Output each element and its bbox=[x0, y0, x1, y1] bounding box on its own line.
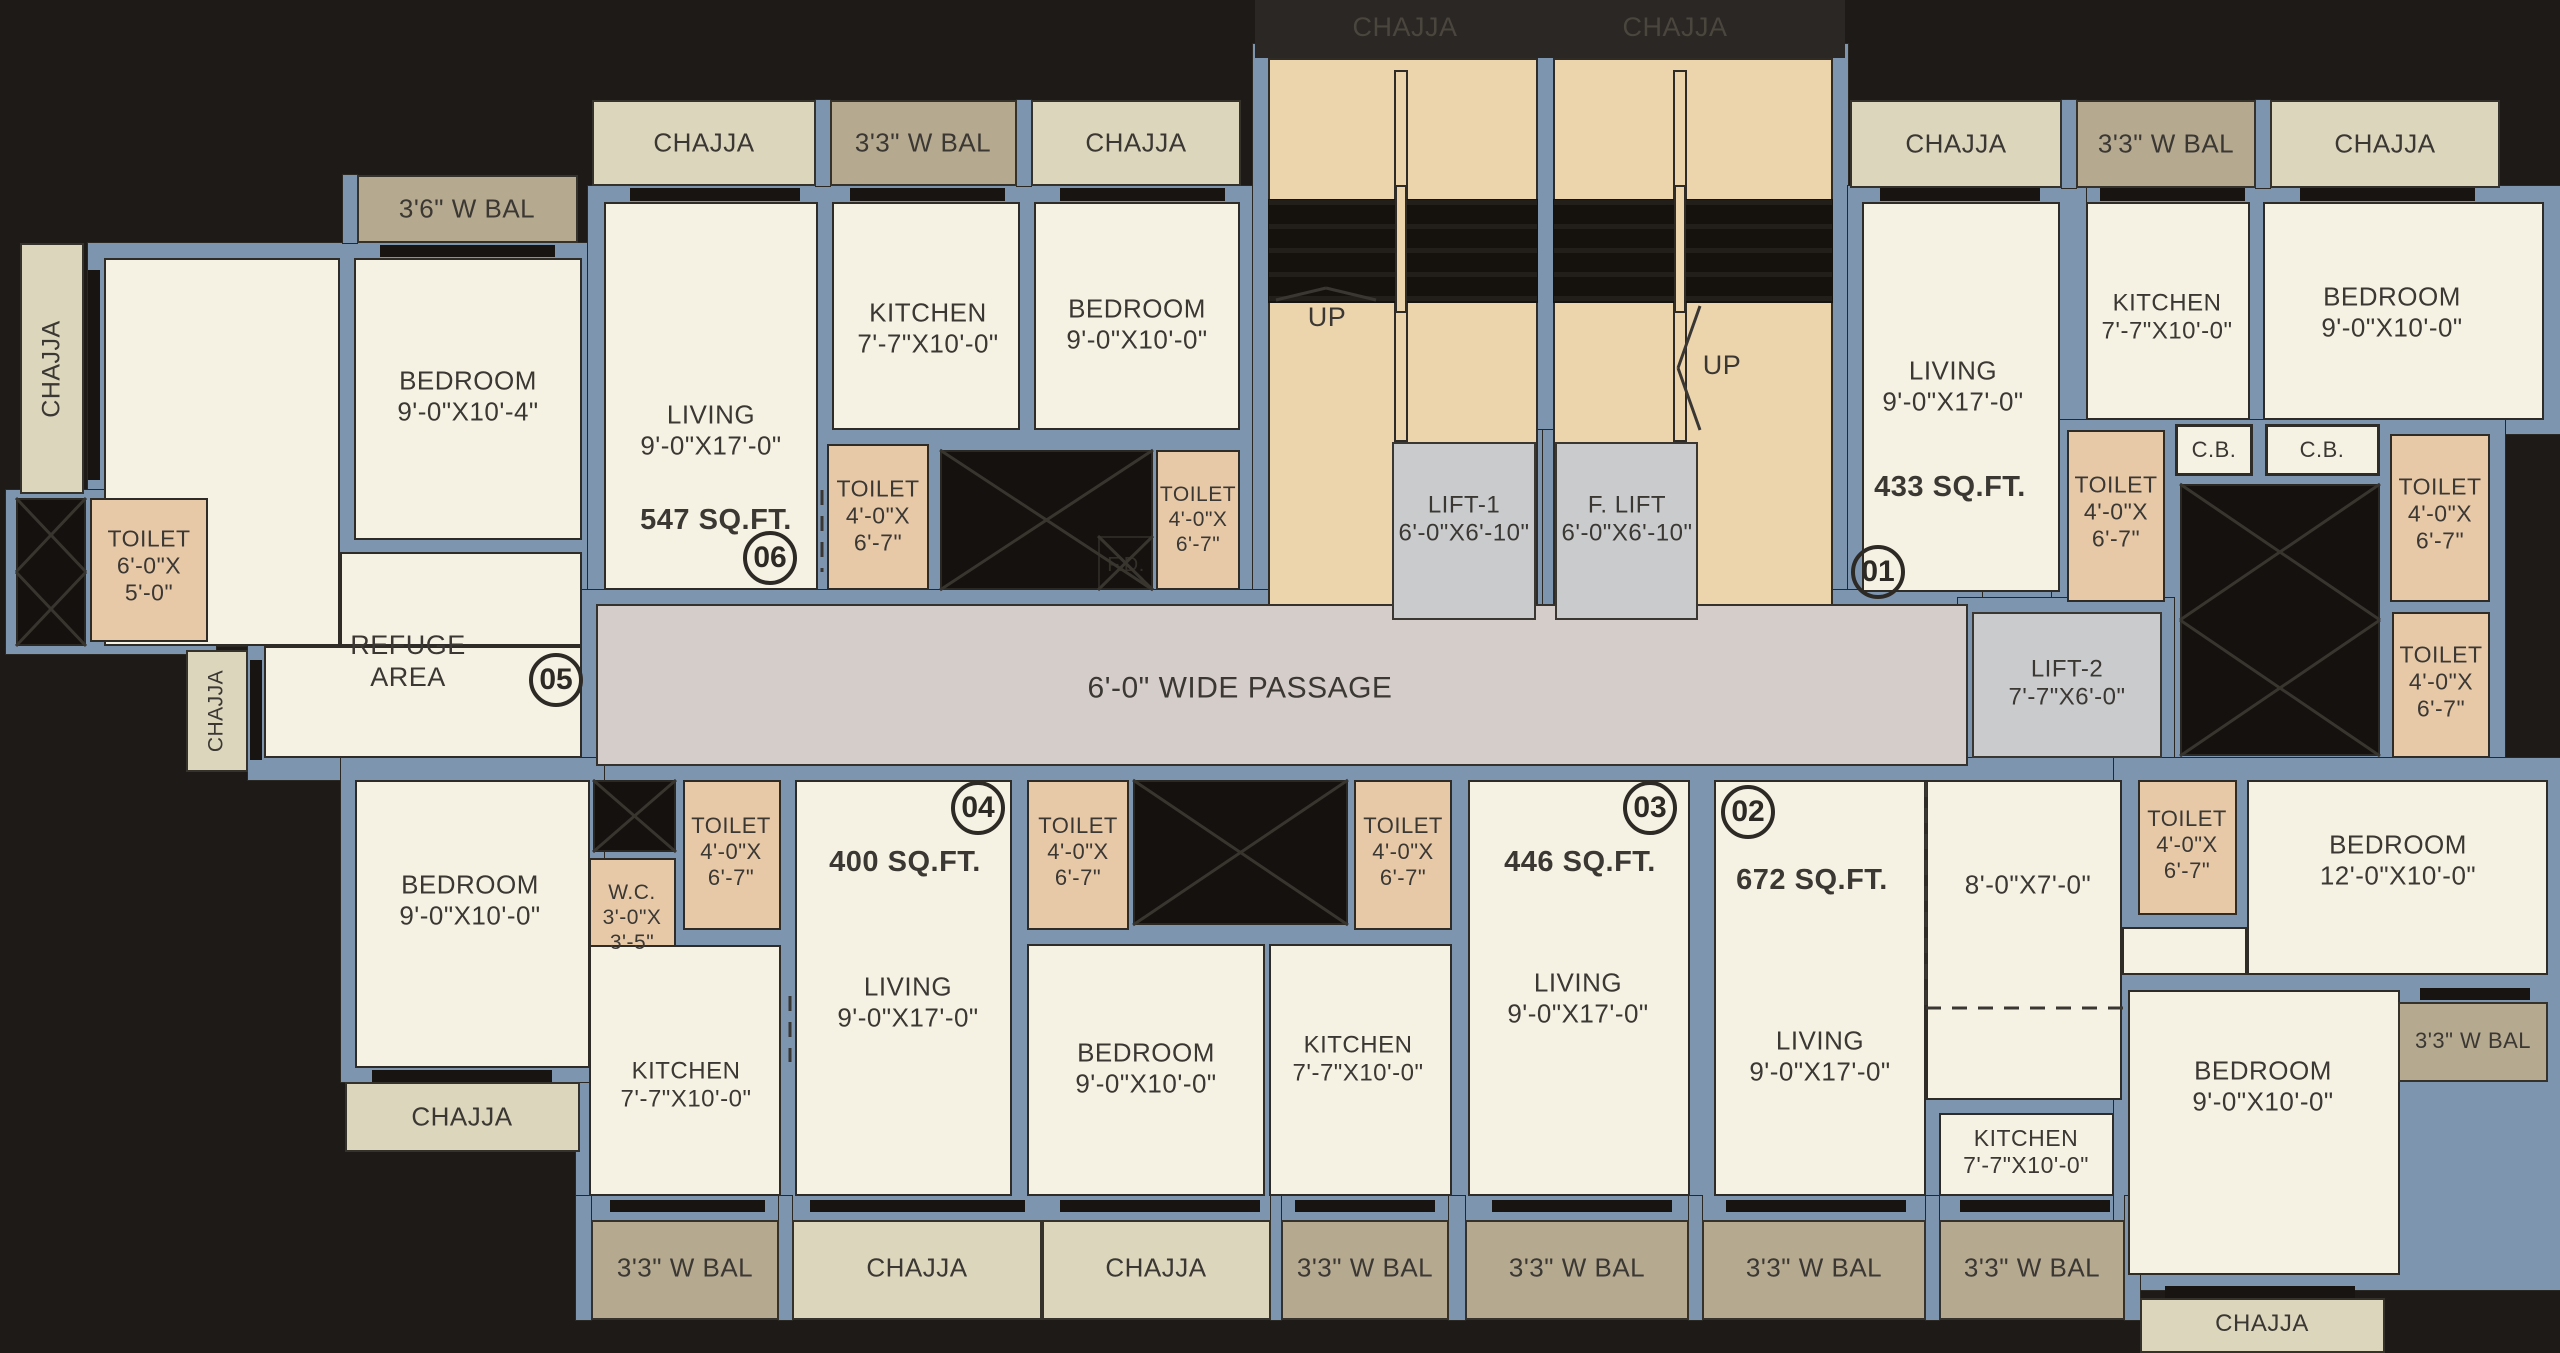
text-label: 433 SQ.FT. bbox=[1874, 470, 2026, 504]
room-label-toilet-01-right-upper: TOILET4'-0"X6'-7" bbox=[2398, 473, 2481, 554]
unit-circle-03: 03 bbox=[1623, 781, 1677, 835]
room-label-living-01: LIVING9'-0"X17'-0" bbox=[1882, 355, 2023, 416]
room-label-bedroom-02-large: BEDROOM12'-0"X10'-0" bbox=[2320, 829, 2476, 890]
room-label-toilet-05: TOILET6'-0"X5'-0" bbox=[107, 525, 190, 606]
duct-shaft bbox=[1133, 780, 1348, 925]
room-label-living-04: LIVING9'-0"X17'-0" bbox=[837, 971, 978, 1032]
room-label-kitchen-01: KITCHEN7'-7"X10'-0" bbox=[2102, 290, 2233, 347]
window-strip bbox=[1880, 188, 2040, 201]
unit-circle-02: 02 bbox=[1721, 785, 1775, 839]
room-label-bedroom-02-small: BEDROOM9'-0"X10'-0" bbox=[2192, 1055, 2333, 1116]
duct-shaft bbox=[16, 498, 86, 646]
text-label: 446 SQ.FT. bbox=[1504, 845, 1656, 879]
window-strip bbox=[1295, 1200, 1435, 1212]
room-label-bedroom-01: BEDROOM9'-0"X10'-0" bbox=[2321, 281, 2462, 342]
room-stair-rail-1 bbox=[1395, 185, 1407, 313]
room-label-chajja-top-4: CHAJJA bbox=[2334, 129, 2435, 160]
wall bbox=[1926, 1196, 1939, 1320]
window-strip bbox=[1060, 188, 1225, 201]
duct-shaft bbox=[2180, 484, 2380, 756]
room-label-living-03: LIVING9'-0"X17'-0" bbox=[1507, 967, 1648, 1028]
window-strip bbox=[2420, 988, 2530, 1000]
unit-circle-06: 06 bbox=[743, 531, 797, 585]
room-label-lift-1: LIFT-16'-0"X6'-10" bbox=[1399, 492, 1530, 549]
room-label-wbal-bottom-2: 3'3" W BAL bbox=[1297, 1253, 1433, 1284]
text-label: UP bbox=[1308, 302, 1347, 334]
room-label-bedroom-03: BEDROOM9'-0"X10'-0" bbox=[1075, 1037, 1216, 1098]
room-label-chajja-bottom-right: CHAJJA bbox=[2215, 1310, 2309, 1338]
window-strip bbox=[850, 188, 1005, 201]
window-strip bbox=[2165, 1286, 2355, 1298]
duct-shaft bbox=[593, 780, 676, 852]
window-strip bbox=[2300, 188, 2475, 201]
room-label-bedroom-06: BEDROOM9'-0"X10'-0" bbox=[1066, 293, 1207, 354]
room-lobby-02 bbox=[2122, 927, 2247, 975]
unit-circle-05: 05 bbox=[529, 653, 583, 707]
wall bbox=[343, 175, 357, 243]
text-label: F.D. bbox=[1107, 554, 1145, 578]
room-label-cupboard-2: C.B. bbox=[2300, 437, 2345, 463]
room-label-toilet-02: TOILET4'-0"X6'-7" bbox=[2147, 806, 2227, 884]
room-label-lift-2: LIFT-27'-7"X6'-0" bbox=[2008, 656, 2125, 713]
room-label-toilet-06-a: TOILET4'-0"X6'-7" bbox=[836, 475, 919, 556]
window-strip bbox=[380, 245, 555, 257]
wall bbox=[1449, 1196, 1465, 1320]
room-label-kitchen-02: KITCHEN7'-7"X10'-0" bbox=[1963, 1125, 2089, 1179]
wall bbox=[1271, 1196, 1281, 1320]
wall bbox=[2256, 100, 2270, 188]
window-strip bbox=[810, 1200, 1025, 1212]
window-strip bbox=[250, 660, 262, 760]
text-label: REFUGEAREA bbox=[350, 630, 466, 694]
room-label-chajja-04: CHAJJA bbox=[411, 1102, 512, 1133]
window-strip bbox=[1060, 1200, 1260, 1212]
room-label-kitchen-06: KITCHEN7'-7"X10'-0" bbox=[857, 297, 998, 358]
room-label-living-02: LIVING9'-0"X17'-0" bbox=[1749, 1025, 1890, 1086]
room-label-chajja-top-3: CHAJJA bbox=[1905, 129, 2006, 160]
room-label-toilet-01-right-lower: TOILET4'-0"X6'-7" bbox=[2399, 641, 2482, 722]
room-label-kitchen-04: KITCHEN7'-7"X10'-0" bbox=[621, 1058, 752, 1115]
text-label: CHAJJA bbox=[1622, 12, 1727, 44]
room-label-wc-04: W.C.3'-0"X3'-5" bbox=[603, 881, 662, 955]
floor-plan: BEDROOM9'-0"X10'-4"TOILET6'-0"X5'-0"LIVI… bbox=[0, 0, 2560, 1353]
window-strip bbox=[1960, 1200, 2110, 1212]
room-label-chajja-bottom-1: CHAJJA bbox=[866, 1253, 967, 1284]
room-label-toilet-04: TOILET4'-0"X6'-7" bbox=[691, 813, 771, 891]
wall bbox=[816, 100, 830, 186]
room-stair-rail-2 bbox=[1674, 185, 1686, 313]
text-label: 400 SQ.FT. bbox=[829, 845, 981, 879]
room-label-wbal-right: 3'3" W BAL bbox=[2415, 1028, 2531, 1054]
room-bedroom-02-small bbox=[2128, 990, 2400, 1275]
text-label: 6'-0" WIDE PASSAGE bbox=[1088, 670, 1393, 705]
room-label-wbal-bottom-4: 3'3" W BAL bbox=[1746, 1253, 1882, 1284]
room-living-02 bbox=[1714, 780, 1926, 1196]
room-label-bedroom-04: BEDROOM9'-0"X10'-0" bbox=[399, 869, 540, 930]
room-label-fire-lift: F. LIFT6'-0"X6'-10" bbox=[1562, 492, 1693, 549]
text-label: 672 SQ.FT. bbox=[1736, 863, 1888, 897]
room-label-wbal-bottom-5: 3'3" W BAL bbox=[1964, 1253, 2100, 1284]
window-strip bbox=[1726, 1200, 1906, 1212]
window-strip bbox=[1492, 1200, 1672, 1212]
room-label-toilet-06-b: TOILET4'-0"X6'-7" bbox=[1160, 483, 1236, 557]
wall bbox=[576, 1196, 591, 1320]
room-flexi-room-02 bbox=[1926, 780, 2122, 1100]
room-label-wbal-bottom-3: 3'3" W BAL bbox=[1509, 1253, 1645, 1284]
unit-circle-01: 01 bbox=[1851, 545, 1905, 599]
room-label-cupboard-1: C.B. bbox=[2192, 437, 2237, 463]
room-label-chajja-top-1: CHAJJA bbox=[653, 128, 754, 159]
wall bbox=[2062, 100, 2076, 188]
text-label: 8'-0"X7'-0" bbox=[1965, 870, 2091, 901]
room-label-kitchen-03: KITCHEN7'-7"X10'-0" bbox=[1293, 1032, 1424, 1089]
room-label-living-06: LIVING9'-0"X17'-0" bbox=[640, 399, 781, 460]
room-label-toilet-03-a: TOILET4'-0"X6'-7" bbox=[1038, 813, 1118, 891]
room-label-chajja-left-vertical-2: CHAJJA bbox=[205, 670, 230, 752]
room-stair-landing-2 bbox=[1553, 199, 1833, 303]
room-label-wbal-36: 3'6" W BAL bbox=[399, 194, 535, 225]
room-label-wbal-top-1: 3'3" W BAL bbox=[855, 128, 991, 159]
room-label-chajja-bottom-2: CHAJJA bbox=[1105, 1253, 1206, 1284]
window-strip bbox=[372, 1070, 552, 1082]
room-label-toilet-03-b: TOILET4'-0"X6'-7" bbox=[1363, 813, 1443, 891]
wall bbox=[1689, 1196, 1702, 1320]
room-label-toilet-01-left: TOILET4'-0"X6'-7" bbox=[2074, 471, 2157, 552]
room-label-chajja-left-vertical: CHAJJA bbox=[37, 320, 67, 417]
window-strip bbox=[610, 1200, 765, 1212]
room-label-wbal-bottom-1: 3'3" W BAL bbox=[617, 1253, 753, 1284]
wall bbox=[779, 1196, 792, 1320]
room-label-bedroom-05: BEDROOM9'-0"X10'-4" bbox=[397, 365, 538, 426]
wall bbox=[1017, 100, 1031, 186]
room-label-chajja-top-2: CHAJJA bbox=[1085, 128, 1186, 159]
room-label-wbal-top-2: 3'3" W BAL bbox=[2098, 129, 2234, 160]
room-chajja-dark-strip bbox=[1255, 0, 1845, 58]
window-strip bbox=[88, 270, 100, 480]
unit-circle-04: 04 bbox=[951, 781, 1005, 835]
text-label: CHAJJA bbox=[1352, 12, 1457, 44]
text-label: UP bbox=[1703, 350, 1742, 382]
window-strip bbox=[630, 188, 800, 201]
window-strip bbox=[2100, 188, 2245, 201]
